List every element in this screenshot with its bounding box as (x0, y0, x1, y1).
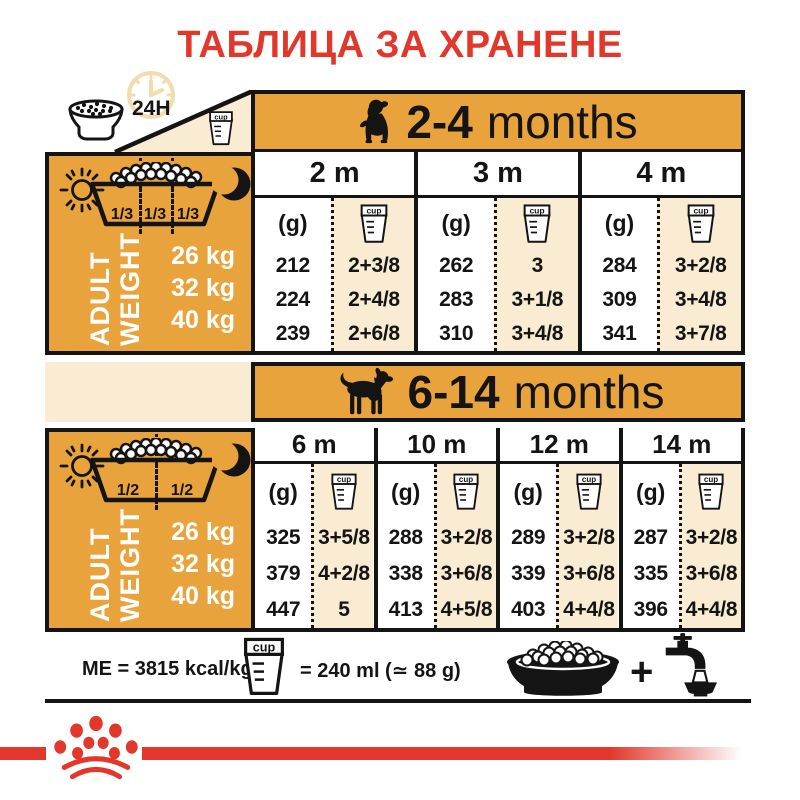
cup-value: 3+4/8 (512, 317, 564, 351)
month-header: 10 m (378, 428, 497, 464)
adult-label: ADULT (87, 242, 114, 346)
weight-row-label: 40 kg (125, 580, 235, 612)
month-header: 12 m (500, 428, 619, 464)
cup-value: 3+2/8 (686, 520, 738, 556)
moon-icon (212, 440, 252, 480)
brand-stripe-right (142, 747, 742, 760)
ration-fraction: 1/3 (171, 206, 205, 224)
grams-value: 396 (634, 592, 668, 628)
grams-value: 283 (439, 283, 473, 317)
grams-value: 379 (266, 556, 300, 592)
cup-value: 2+3/8 (348, 249, 400, 283)
grams-value: 224 (276, 283, 310, 317)
cup-value: 3+2/8 (563, 520, 615, 556)
cup-value: 3+1/8 (512, 283, 564, 317)
svg-text:cup: cup (530, 205, 545, 215)
water-tap-icon (658, 632, 718, 698)
weight-row-label: 40 kg (125, 304, 235, 336)
brand-stripe-left (0, 747, 46, 760)
adult-weight-panel-2: 1/2 1/2 ADULT WEIGHT 26 kg 32 kg 40 kg (45, 428, 255, 632)
ration-fraction: 1/2 (165, 482, 199, 500)
food-bowl-icon (503, 641, 623, 701)
grams-header: (g) (278, 198, 307, 249)
ration-divider-line (155, 462, 158, 508)
cream-spacer-block (45, 362, 251, 422)
metabolizable-energy-label: ME = 3815 kcal/kg (82, 658, 253, 681)
ration-fraction: 1/3 (138, 206, 172, 224)
section1-header-band: 2-4 months (251, 90, 745, 152)
weight-row-label: 32 kg (125, 548, 235, 580)
month-column-14m: 14 m (g) 287 335 396 cup (619, 428, 742, 628)
section1-data-table: 2 m (g) 212 224 239 cup (255, 152, 745, 355)
cup-value: 2+4/8 (348, 283, 400, 317)
month-header: 2 m (255, 152, 414, 198)
cup-value: 2+6/8 (348, 317, 400, 351)
svg-text:cup: cup (214, 112, 228, 121)
grams-value: 284 (602, 249, 636, 283)
ration-fraction: 1/2 (111, 482, 145, 500)
grams-header: (g) (391, 464, 420, 520)
adult-weight-panel-1: 1/3 1/3 1/3 ADULT WEIGHT 26 kg 32 kg 40 … (45, 152, 255, 355)
footer-divider (45, 699, 751, 703)
cup-value: 3+6/8 (563, 556, 615, 592)
grams-value: 310 (439, 317, 473, 351)
grams-value: 262 (439, 249, 473, 283)
grams-value: 341 (602, 317, 636, 351)
feeding-table-page: ТАБЛИЦА ЗА ХРАНЕНЕ (0, 0, 800, 800)
cup-value: 3+6/8 (441, 556, 493, 592)
month-column-3m: 3 m (g) 262 283 310 cup (414, 152, 577, 351)
cup-equivalence-label: = 240 ml (≃ 88 g) (300, 658, 461, 683)
svg-text:cup: cup (337, 475, 351, 484)
cup-value: 3+2/8 (675, 249, 727, 283)
cup-value: 3+5/8 (318, 520, 370, 556)
royal-canin-crown-logo (50, 713, 142, 783)
weight-row-label: 32 kg (125, 272, 235, 304)
cup-value: 3+2/8 (441, 520, 493, 556)
month-column-6m: 6 m (g) 325 379 447 cup (255, 428, 374, 628)
svg-text:cup: cup (582, 475, 596, 484)
grams-header: (g) (441, 198, 470, 249)
grams-value: 447 (266, 592, 300, 628)
section2-header-band: 6-14 months (251, 362, 745, 422)
adult-label: ADULT (87, 518, 114, 622)
grams-value: 403 (511, 592, 545, 628)
cup-value: 3+7/8 (675, 317, 727, 351)
grams-value: 212 (276, 249, 310, 283)
month-column-2m: 2 m (g) 212 224 239 cup (255, 152, 414, 351)
measuring-cup-icon: cup (684, 198, 718, 249)
weight-row-label: 26 kg (125, 240, 235, 272)
cup-value: 3+6/8 (686, 556, 738, 592)
measuring-cup-icon: cup (357, 198, 391, 249)
cup-value: 4+2/8 (318, 556, 370, 592)
grams-value: 287 (634, 520, 668, 556)
grams-header: (g) (605, 198, 634, 249)
measuring-cup-icon: cup (573, 464, 605, 520)
weight-row-label: 26 kg (125, 516, 235, 548)
month-column-12m: 12 m (g) 289 339 403 cup (496, 428, 619, 628)
measuring-cup-icon: cup (206, 110, 236, 147)
plus-icon: + (630, 652, 653, 692)
grams-value: 239 (276, 317, 310, 351)
measuring-cup-icon: cup (695, 464, 727, 520)
grams-value: 338 (389, 556, 423, 592)
grams-value: 335 (634, 556, 668, 592)
svg-text:cup: cup (366, 205, 381, 215)
section1-months-word: months (487, 99, 638, 145)
section2-months-word: months (514, 369, 665, 415)
grams-value: 309 (602, 283, 636, 317)
grams-value: 413 (389, 592, 423, 628)
measuring-cup-icon: cup (450, 464, 482, 520)
page-title: ТАБЛИЦА ЗА ХРАНЕНЕ (0, 24, 800, 67)
grams-header: (g) (513, 464, 542, 520)
svg-text:cup: cup (704, 475, 718, 484)
grams-header: (g) (268, 464, 297, 520)
moon-icon (212, 164, 252, 204)
cup-value: 3+4/8 (675, 283, 727, 317)
svg-text:cup: cup (459, 475, 473, 484)
cup-value: 4+5/8 (441, 592, 493, 628)
month-column-10m: 10 m (g) 288 338 413 cup (374, 428, 497, 628)
cup-value: 4+4/8 (563, 592, 615, 628)
month-header: 4 m (582, 152, 741, 198)
measuring-cup-icon: cup (238, 636, 290, 698)
cup-value: 4+4/8 (686, 592, 738, 628)
section1-age-range: 2-4 (406, 99, 472, 145)
cup-value: 5 (338, 592, 349, 628)
grams-value: 339 (511, 556, 545, 592)
svg-text:cup: cup (693, 205, 708, 215)
month-header: 14 m (623, 428, 742, 464)
month-header: 3 m (418, 152, 577, 198)
cup-value: 3 (532, 249, 543, 283)
section2-data-table: 6 m (g) 325 379 447 cup (255, 428, 745, 632)
adult-dog-icon (332, 367, 394, 417)
svg-text:cup: cup (253, 641, 276, 655)
month-header: 6 m (255, 428, 374, 464)
grams-header: (g) (636, 464, 665, 520)
grams-value: 325 (266, 520, 300, 556)
puppy-icon (358, 98, 392, 146)
ration-fraction: 1/3 (105, 206, 139, 224)
grams-value: 289 (511, 520, 545, 556)
measuring-cup-icon: cup (328, 464, 360, 520)
grams-value: 288 (389, 520, 423, 556)
month-column-4m: 4 m (g) 284 309 341 cup (578, 152, 741, 351)
section2-age-range: 6-14 (408, 369, 500, 415)
measuring-cup-icon: cup (520, 198, 554, 249)
